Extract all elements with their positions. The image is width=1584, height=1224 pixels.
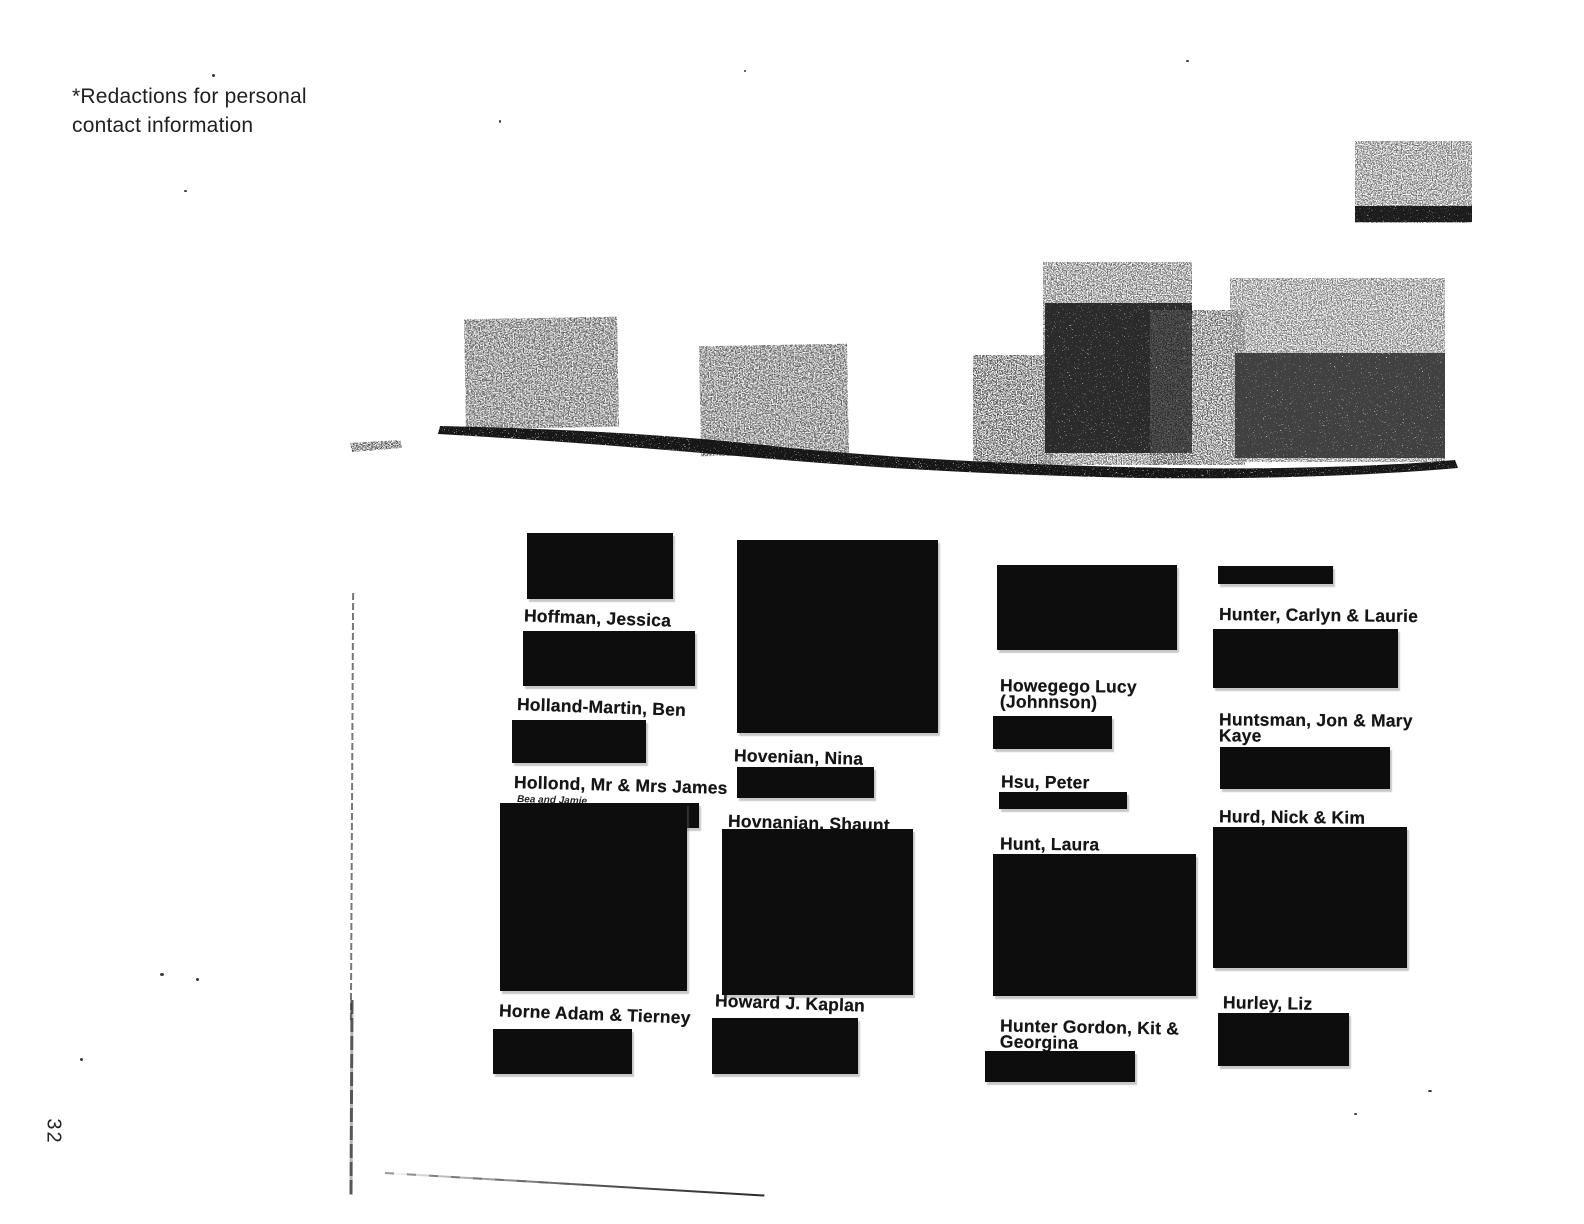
redaction-box <box>993 854 1196 996</box>
entry-name-hollond: Hollond, Mr & Mrs James <box>514 774 728 796</box>
entry-name-hurley: Hurley, Liz <box>1223 994 1313 1012</box>
redaction-box <box>737 540 938 733</box>
scan-vertical-line-artifact <box>350 593 354 1023</box>
scan-speck <box>212 74 215 77</box>
redaction-box <box>1220 747 1390 789</box>
redaction-box <box>1218 566 1333 584</box>
redaction-box <box>722 829 913 995</box>
scan-speck <box>184 190 187 192</box>
redaction-box <box>997 565 1177 650</box>
scan-speck <box>196 978 199 981</box>
redaction-box <box>1218 1013 1349 1066</box>
redaction-box <box>985 1051 1135 1082</box>
entry-name-hovenian: Hovenian, Nina <box>734 747 864 767</box>
scan-speck <box>80 1058 83 1061</box>
redaction-box <box>993 716 1112 749</box>
redaction-box <box>527 533 673 599</box>
entry-name-hunter-carlyn: Hunter, Carlyn & Laurie <box>1219 606 1418 624</box>
redaction-box <box>737 767 874 798</box>
redaction-box <box>493 1029 632 1074</box>
redaction-box <box>712 1018 858 1074</box>
redaction-box <box>512 720 646 763</box>
scan-speck <box>1354 1113 1357 1115</box>
page-number: 32 <box>42 1118 65 1144</box>
redaction-box <box>500 803 687 991</box>
entry-name-horne: Horne Adam & Tierney <box>499 1002 691 1025</box>
entry-name-hunt: Hunt, Laura <box>1000 835 1100 852</box>
entry-name-hurd: Hurd, Nick & Kim <box>1219 808 1365 826</box>
scan-vertical-line-artifact-lower <box>349 1000 353 1195</box>
redaction-box <box>523 631 695 686</box>
scan-speck <box>499 120 501 123</box>
redaction-box <box>1213 629 1398 688</box>
scan-speck <box>1428 1090 1432 1092</box>
scan-speck <box>1186 60 1189 62</box>
entry-name-hunter-gordon: Hunter Gordon, Kit & Georgina <box>1000 1017 1180 1052</box>
scanned-document-page: *Redactions for personal contact informa… <box>0 0 1584 1224</box>
redaction-box <box>1213 827 1407 968</box>
scan-diagonal-line-dashes <box>385 1172 585 1186</box>
redaction-note: *Redactions for personal contact informa… <box>72 82 307 140</box>
entry-name-howegego: Howegego Lucy (Johnnson) <box>1000 677 1137 710</box>
scan-noise-artifact <box>340 128 1490 483</box>
entry-name-huntsman: Huntsman, Jon & Mary Kaye <box>1219 711 1413 744</box>
entry-name-howard-kaplan: Howard J. Kaplan <box>715 992 866 1013</box>
scan-speck <box>744 70 746 72</box>
entry-name-hoffman: Hoffman, Jessica <box>524 607 672 628</box>
scan-speck <box>160 973 164 976</box>
entry-name-hsu: Hsu, Peter <box>1001 774 1090 791</box>
redaction-box <box>999 792 1127 809</box>
entry-name-holland-martin: Holland-Martin, Ben <box>517 696 687 718</box>
